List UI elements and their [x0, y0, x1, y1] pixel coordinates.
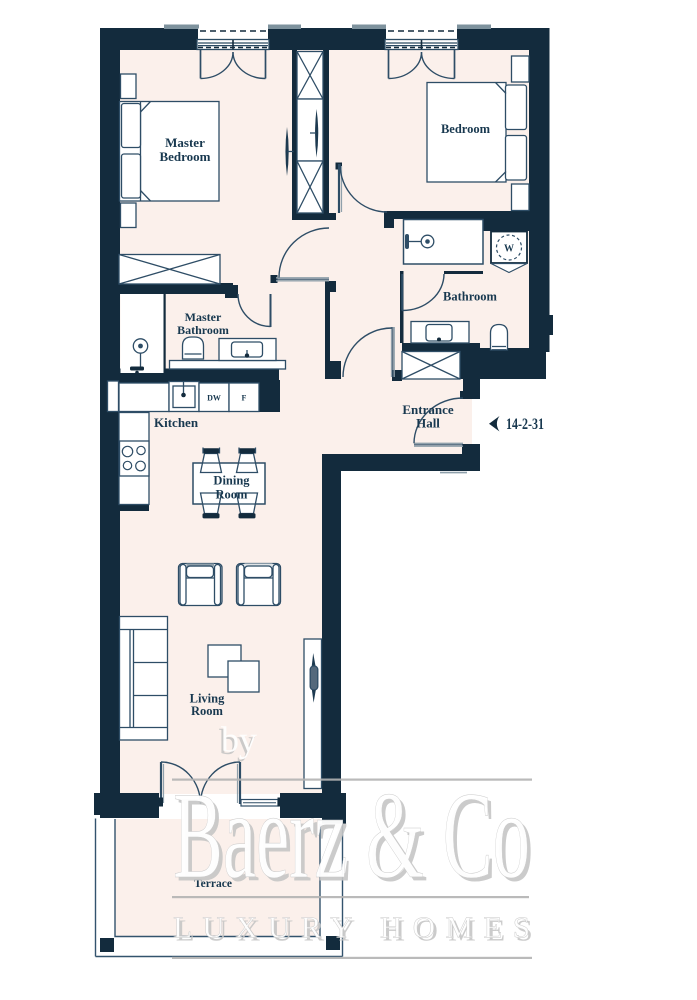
svg-text:Room: Room: [191, 704, 224, 718]
svg-text:Master: Master: [165, 135, 205, 150]
svg-text:Bathroom: Bathroom: [177, 323, 229, 337]
svg-text:F: F: [242, 394, 247, 403]
svg-text:Bedroom: Bedroom: [159, 149, 210, 164]
svg-text:DW: DW: [207, 394, 221, 403]
svg-text:Bedroom: Bedroom: [441, 122, 491, 136]
svg-text:W: W: [504, 244, 514, 255]
svg-text:Bathroom: Bathroom: [443, 290, 498, 304]
svg-text:by: by: [221, 720, 257, 760]
svg-text:Room: Room: [216, 488, 249, 502]
svg-text:Dining: Dining: [213, 474, 250, 488]
svg-text:14-2-31: 14-2-31: [506, 416, 544, 433]
svg-text:Hall: Hall: [416, 416, 440, 431]
svg-text:Baerz & Co: Baerz & Co: [173, 767, 530, 904]
svg-text:Kitchen: Kitchen: [154, 415, 199, 430]
svg-text:Master: Master: [185, 310, 222, 324]
